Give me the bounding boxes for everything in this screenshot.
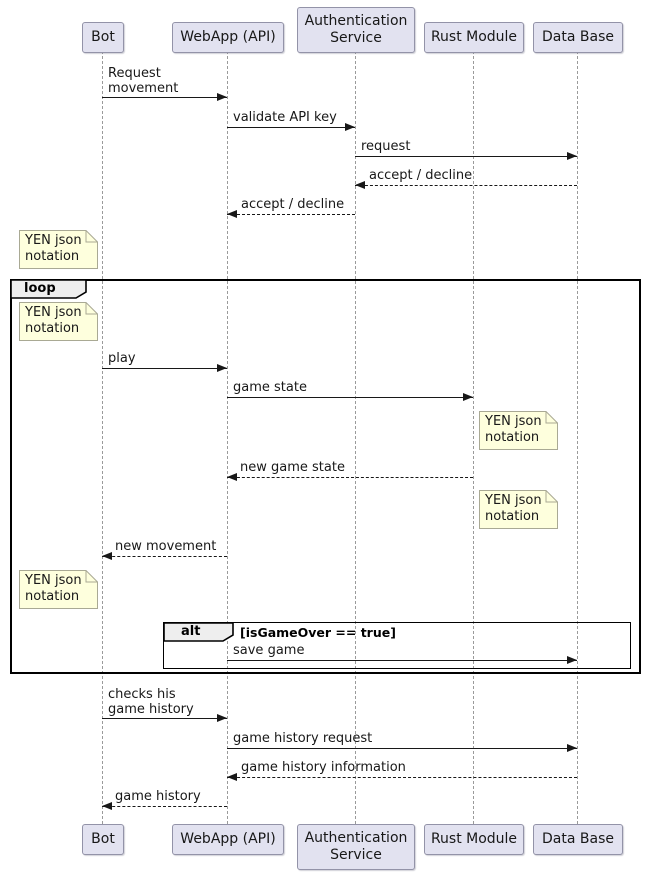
participant-authentication-service-top: Authentication Service bbox=[297, 7, 415, 53]
alt-guard: [isGameOver == true] bbox=[240, 625, 396, 640]
message-label: checks his game history bbox=[108, 687, 194, 717]
message-line bbox=[227, 477, 473, 478]
message-label: game history bbox=[115, 789, 201, 804]
message-line bbox=[227, 748, 577, 749]
sequence-diagram: loop alt [isGameOver == true] Request mo… bbox=[0, 0, 645, 874]
note-label: YEN json notation bbox=[25, 305, 82, 337]
loop-label: loop bbox=[24, 281, 56, 296]
arrowhead-icon bbox=[355, 181, 365, 189]
participant-rust-module-bottom: Rust Module bbox=[424, 824, 524, 855]
arrowhead-icon bbox=[227, 473, 237, 481]
arrowhead-icon bbox=[217, 714, 227, 722]
alt-frame-header: alt bbox=[163, 622, 235, 647]
arrowhead-icon bbox=[217, 93, 227, 101]
message-line bbox=[227, 777, 577, 778]
arrowhead-icon bbox=[227, 210, 237, 218]
message-label: accept / decline bbox=[241, 197, 344, 212]
note-yen-json-5: YEN json notation bbox=[19, 570, 98, 609]
message-label: new game state bbox=[240, 460, 345, 475]
note-label: YEN json notation bbox=[25, 573, 82, 605]
message-line bbox=[227, 660, 577, 661]
message-line bbox=[227, 397, 473, 398]
message-label: save game bbox=[233, 643, 304, 658]
note-yen-json-3: YEN json notation bbox=[479, 411, 558, 450]
message-line bbox=[355, 185, 577, 186]
message-line bbox=[102, 97, 227, 98]
arrowhead-icon bbox=[463, 393, 473, 401]
message-label: request bbox=[361, 139, 410, 154]
message-line bbox=[102, 556, 227, 557]
message-label: validate API key bbox=[233, 110, 337, 125]
note-label: YEN json notation bbox=[485, 493, 542, 525]
participant-bot-bottom: Bot bbox=[82, 824, 124, 855]
arrowhead-icon bbox=[102, 552, 112, 560]
arrowhead-icon bbox=[102, 802, 112, 810]
participant-authentication-service-bottom: Authentication Service bbox=[297, 824, 415, 870]
message-line bbox=[227, 214, 355, 215]
message-label: game history information bbox=[241, 760, 406, 775]
participant-data-base-bottom: Data Base bbox=[533, 824, 623, 855]
participant-rust-module-top: Rust Module bbox=[424, 22, 524, 53]
note-yen-json-2: YEN json notation bbox=[19, 302, 98, 341]
message-label: new movement bbox=[115, 539, 216, 554]
message-line bbox=[355, 156, 577, 157]
arrowhead-icon bbox=[567, 152, 577, 160]
message-label: game state bbox=[233, 380, 307, 395]
note-yen-json-1: YEN json notation bbox=[19, 230, 98, 269]
message-line bbox=[102, 368, 227, 369]
note-label: YEN json notation bbox=[25, 233, 82, 265]
arrowhead-icon bbox=[345, 123, 355, 131]
participant-webapp-top: WebApp (API) bbox=[172, 22, 284, 53]
arrowhead-icon bbox=[567, 744, 577, 752]
message-label: Request movement bbox=[108, 66, 178, 96]
note-label: YEN json notation bbox=[485, 414, 542, 446]
message-label: play bbox=[108, 351, 136, 366]
note-yen-json-4: YEN json notation bbox=[479, 490, 558, 529]
message-line bbox=[102, 718, 227, 719]
message-label: accept / decline bbox=[369, 168, 472, 183]
arrowhead-icon bbox=[567, 656, 577, 664]
participant-data-base-top: Data Base bbox=[533, 22, 623, 53]
participant-bot-top: Bot bbox=[82, 22, 124, 53]
loop-frame-header: loop bbox=[10, 279, 88, 304]
message-line bbox=[227, 127, 355, 128]
participant-webapp-bottom: WebApp (API) bbox=[172, 824, 284, 855]
arrowhead-icon bbox=[217, 364, 227, 372]
alt-label: alt bbox=[181, 624, 200, 639]
message-label: game history request bbox=[233, 731, 372, 746]
message-line bbox=[102, 806, 227, 807]
arrowhead-icon bbox=[227, 773, 237, 781]
